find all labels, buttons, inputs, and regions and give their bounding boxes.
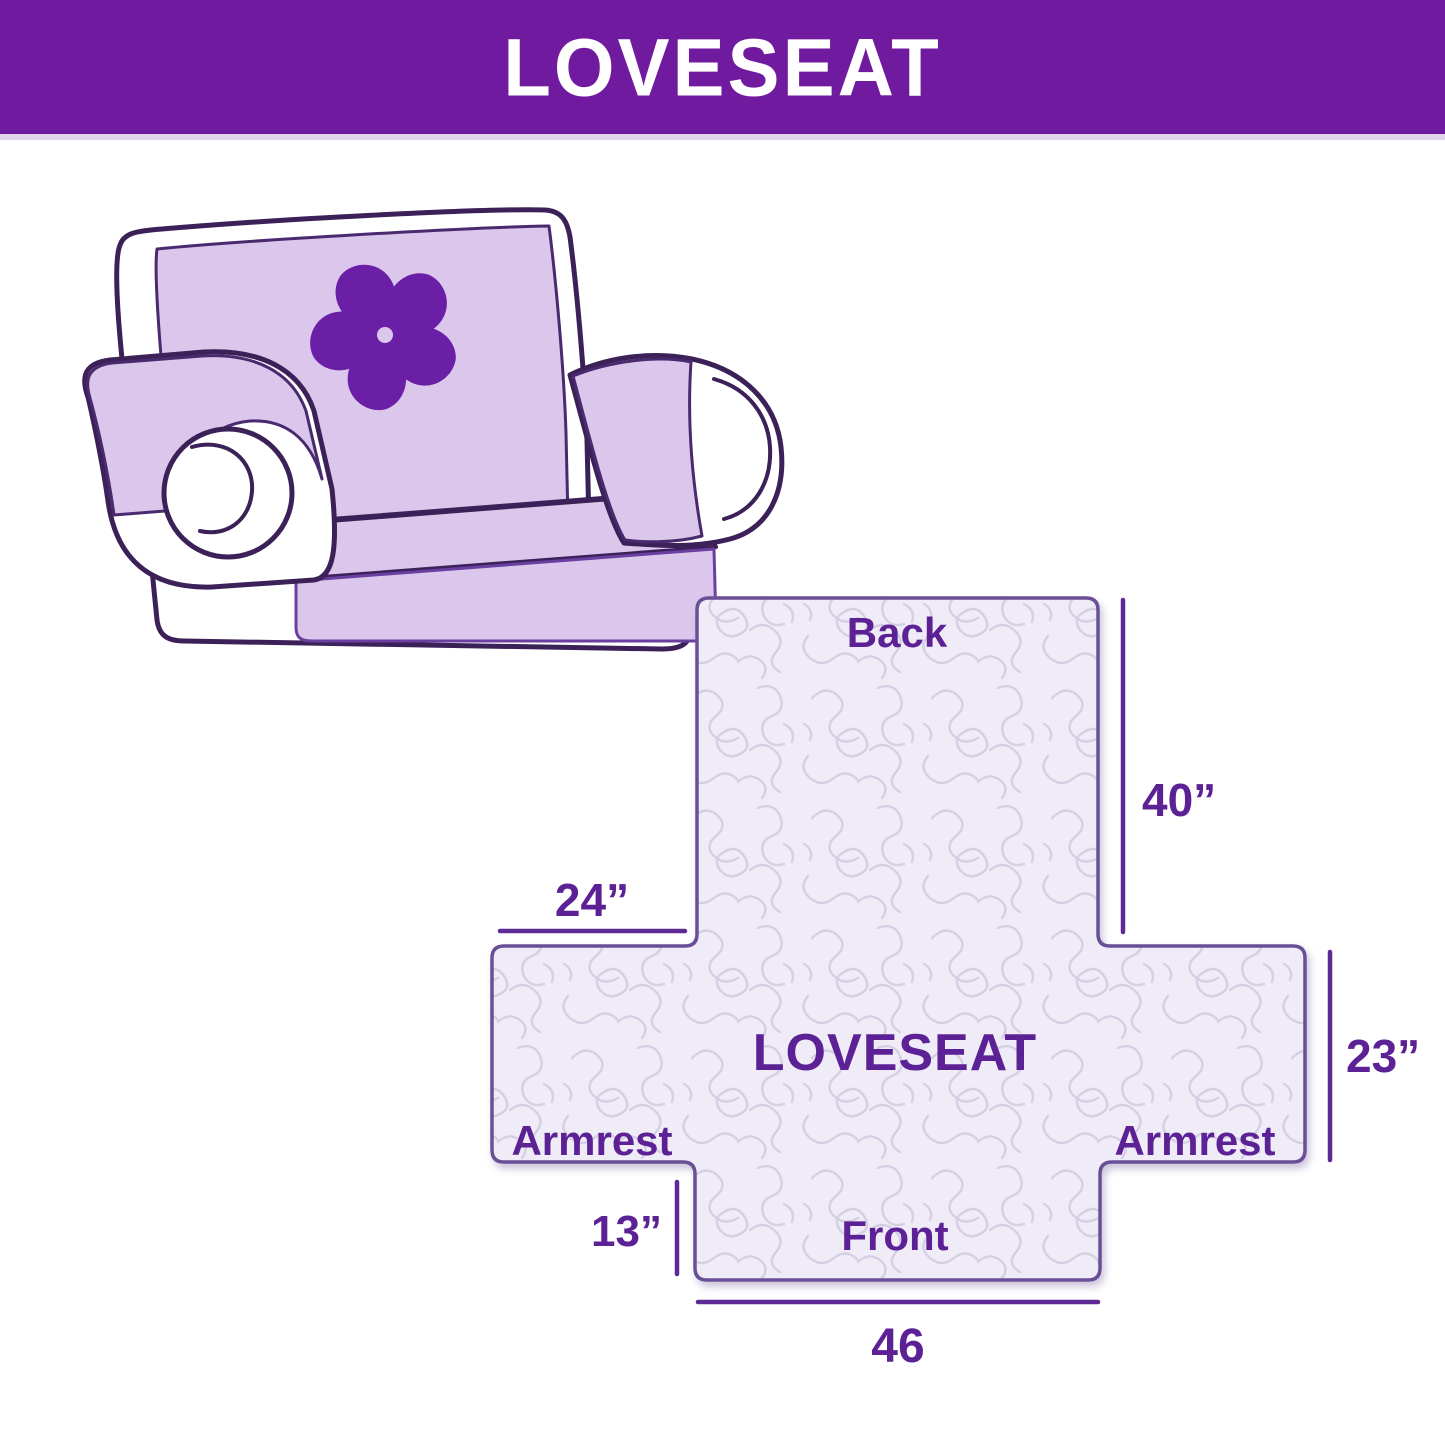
dim-front-width-label: 46 xyxy=(871,1320,924,1373)
cover-dimensions-diagram: Back 40” 24” LOVESEAT Armrest Armrest 23… xyxy=(440,560,1445,1445)
cover-shape xyxy=(492,598,1305,1280)
banner-bottom-edge xyxy=(0,134,1445,140)
header-banner: LOVESEAT xyxy=(0,0,1445,134)
dim-side-depth-label: 23” xyxy=(1346,1030,1420,1082)
armrest-right-label: Armrest xyxy=(1114,1117,1275,1164)
loveseat-infographic: LOVESEAT xyxy=(0,0,1445,1445)
page-title: LOVESEAT xyxy=(503,26,942,108)
cover-center-label: LOVESEAT xyxy=(753,1024,1037,1082)
dim-back-width-label: 24” xyxy=(555,874,629,926)
armrest-left-label: Armrest xyxy=(511,1117,672,1164)
dim-back-height-label: 40” xyxy=(1142,774,1216,826)
front-label: Front xyxy=(841,1212,948,1259)
back-label: Back xyxy=(847,609,948,656)
dim-front-drop-label: 13” xyxy=(591,1207,662,1256)
